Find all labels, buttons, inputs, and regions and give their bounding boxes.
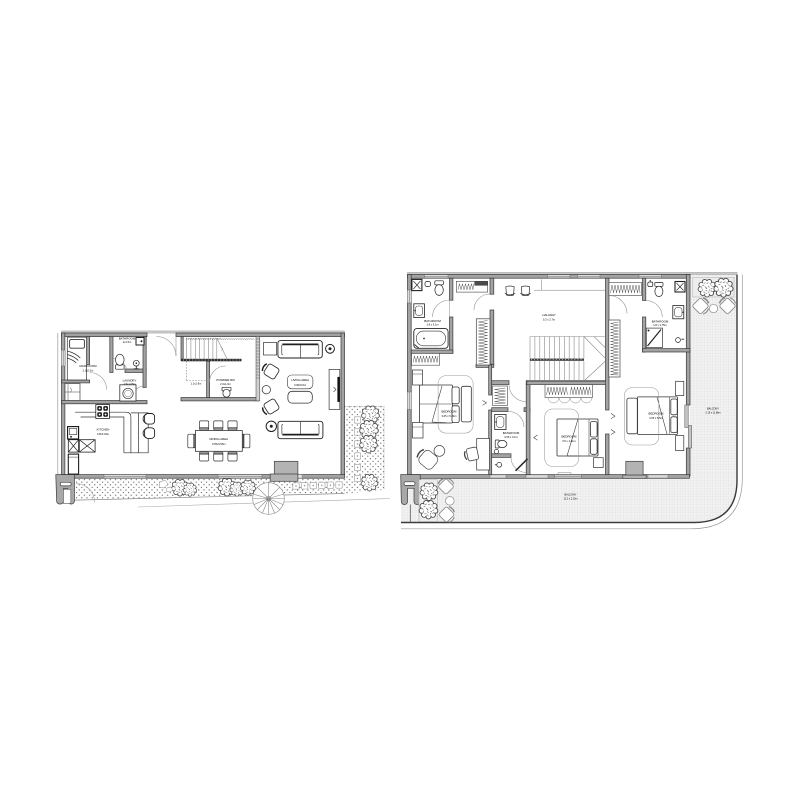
svg-text:BALCONY: BALCONY <box>565 493 577 496</box>
svg-text:BATHROOM: BATHROOM <box>119 337 136 341</box>
svg-text:5.3 x 2.7m: 5.3 x 2.7m <box>543 317 555 321</box>
svg-text:LAUNDRY: LAUNDRY <box>123 379 137 383</box>
svg-text:DINING AREA: DINING AREA <box>209 437 228 441</box>
svg-text:BEDROOM: BEDROOM <box>649 411 665 415</box>
svg-text:BATHROOM: BATHROOM <box>424 319 441 323</box>
svg-text:MAID ROOM: MAID ROOM <box>79 364 97 368</box>
svg-text:KITCHEN: KITCHEN <box>97 428 110 432</box>
svg-text:1.8 x 2.75m: 1.8 x 2.75m <box>653 323 667 327</box>
svg-text:3.55x3.55m: 3.55x3.55m <box>212 442 226 446</box>
svg-text:3.65 x 5.5m: 3.65 x 5.5m <box>649 416 663 420</box>
svg-text:LIVING AREA: LIVING AREA <box>291 378 309 382</box>
svg-text:BEDROOM: BEDROOM <box>442 410 458 414</box>
svg-text:3.65 x 3.1m: 3.65 x 3.1m <box>504 435 518 439</box>
svg-text:1.8 x 3.1m: 1.8 x 3.1m <box>426 323 438 327</box>
svg-text:2.0x2.0m: 2.0x2.0m <box>83 369 94 373</box>
svg-text:1.5x1.05m: 1.5x1.05m <box>123 382 135 386</box>
svg-text:1.1x1.6m: 1.1x1.6m <box>191 382 202 386</box>
svg-text:POWDER RM: POWDER RM <box>216 378 235 382</box>
svg-text:13.2 x 2.15m: 13.2 x 2.15m <box>564 497 578 500</box>
svg-text:3.65 x 5.23m: 3.65 x 5.23m <box>442 414 457 418</box>
svg-text:BALCONY: BALCONY <box>707 407 719 410</box>
svg-text:3.5 x 4.41m: 3.5 x 4.41m <box>562 439 576 443</box>
svg-text:1x1.5m: 1x1.5m <box>123 340 132 344</box>
svg-text:3.8x3.33m: 3.8x3.33m <box>97 432 109 436</box>
svg-text:2.0x1.0m: 2.0x1.0m <box>220 382 231 386</box>
svg-text:BATHROOM: BATHROOM <box>503 431 520 435</box>
svg-text:HALLWAY: HALLWAY <box>542 313 555 317</box>
svg-text:BATHROOM: BATHROOM <box>652 319 669 323</box>
svg-text:3.96x6.5m: 3.96x6.5m <box>294 383 306 387</box>
svg-text:2.19 x 11.68m: 2.19 x 11.68m <box>706 412 721 415</box>
svg-text:BEDROOM: BEDROOM <box>562 434 578 438</box>
